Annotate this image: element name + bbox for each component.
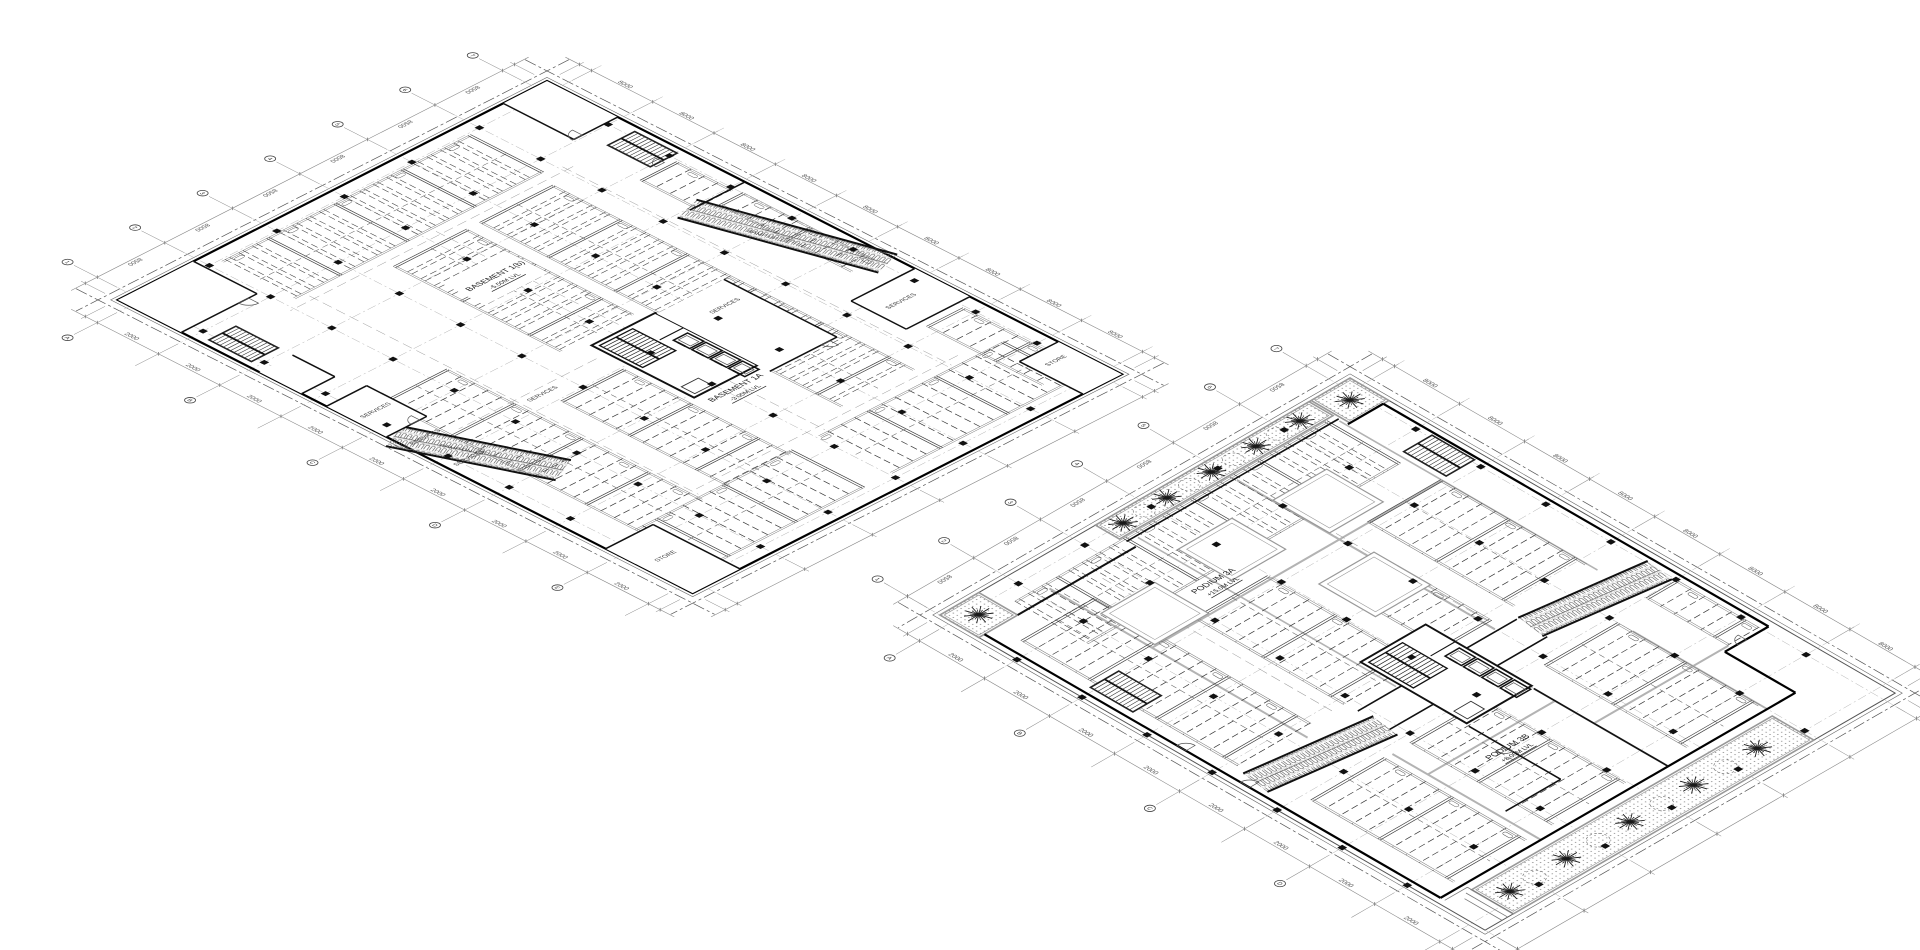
- svg-text:8000: 8000: [860, 205, 879, 215]
- svg-text:8000: 8000: [1876, 641, 1895, 652]
- svg-text:8000: 8000: [1681, 528, 1700, 539]
- svg-text:8000: 8000: [1616, 491, 1635, 502]
- svg-text:8000: 8000: [983, 267, 1002, 277]
- svg-text:8000: 8000: [1420, 378, 1439, 389]
- svg-text:8000: 8000: [922, 236, 941, 246]
- svg-text:8000: 8000: [616, 80, 635, 90]
- svg-text:8000: 8000: [799, 174, 818, 184]
- svg-text:8000: 8000: [1551, 453, 1570, 464]
- svg-text:SERVICES: SERVICES: [525, 385, 560, 403]
- svg-text:8000: 8000: [1486, 416, 1505, 427]
- svg-text:8000: 8000: [1105, 330, 1124, 340]
- svg-text:8000: 8000: [1811, 604, 1830, 615]
- svg-text:8000: 8000: [1746, 566, 1765, 577]
- svg-text:8000: 8000: [1044, 299, 1063, 309]
- svg-text:8000: 8000: [738, 142, 757, 152]
- svg-text:8000: 8000: [677, 111, 696, 121]
